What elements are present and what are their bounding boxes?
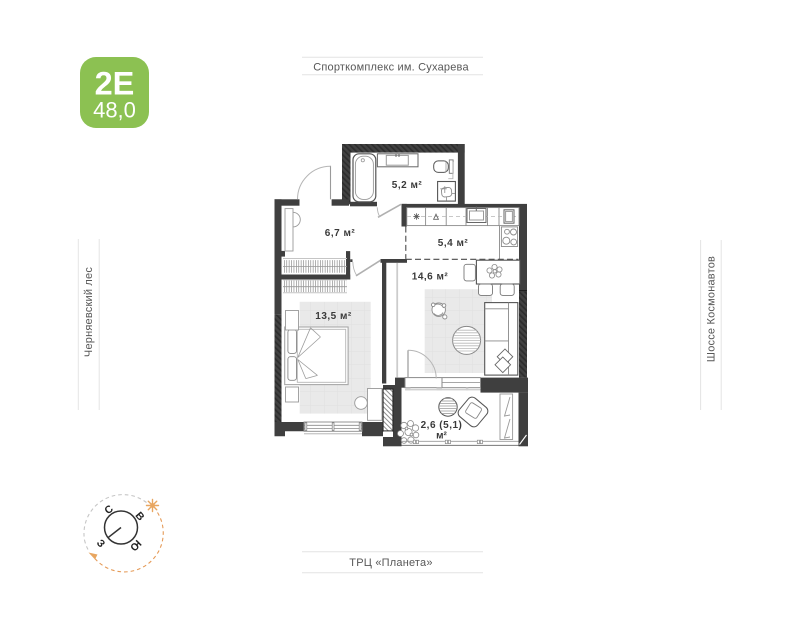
svg-text:5,2 м²: 5,2 м² <box>392 180 423 191</box>
svg-text:5,4 м²: 5,4 м² <box>438 238 469 249</box>
svg-text:Шоссе Космонавтов: Шоссе Космонавтов <box>706 256 718 362</box>
svg-text:48,0: 48,0 <box>93 98 136 123</box>
svg-text:13,5 м²: 13,5 м² <box>315 311 352 322</box>
svg-text:2,6 (5,1): 2,6 (5,1) <box>421 420 463 431</box>
svg-text:ТРЦ «Планета»: ТРЦ «Планета» <box>349 557 432 569</box>
svg-text:6,7 м²: 6,7 м² <box>325 228 356 239</box>
svg-text:14,6 м²: 14,6 м² <box>412 271 449 282</box>
svg-text:Черняевский лес: Черняевский лес <box>83 267 95 357</box>
svg-text:Спорткомплекс им. Сухарева: Спорткомплекс им. Сухарева <box>313 62 469 74</box>
svg-text:м²: м² <box>436 431 447 442</box>
svg-text:2Е: 2Е <box>95 66 135 102</box>
